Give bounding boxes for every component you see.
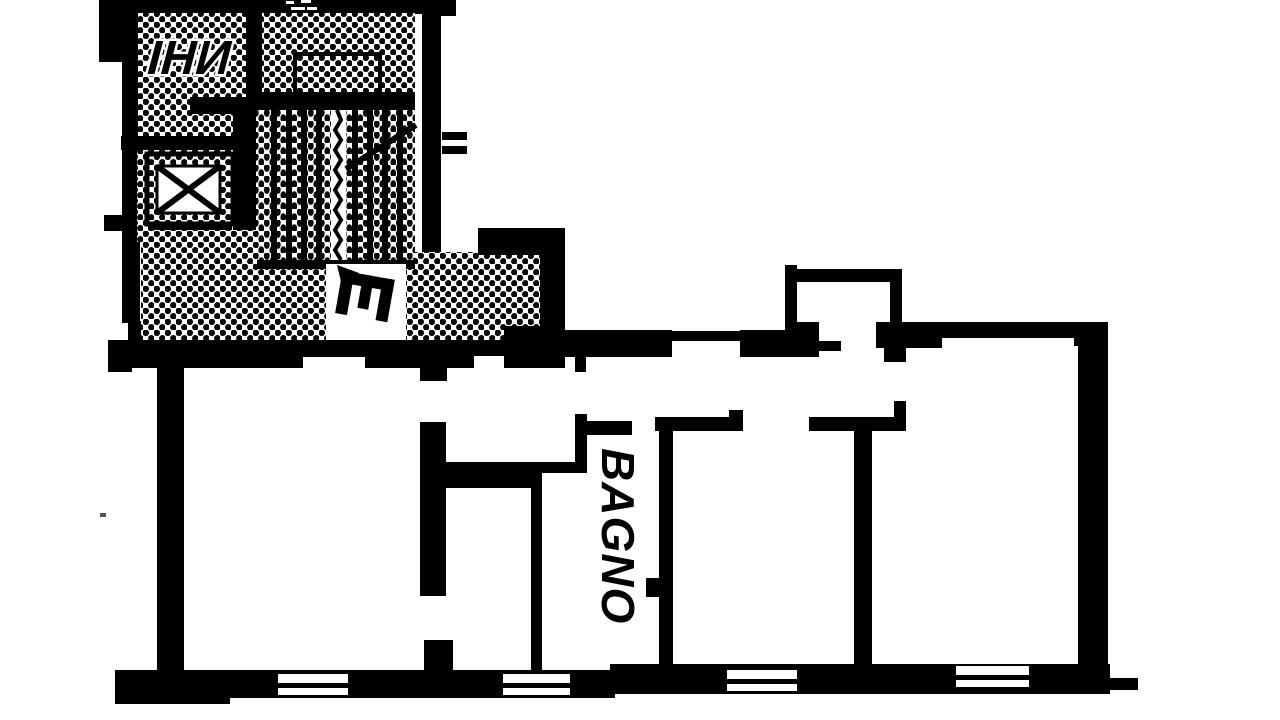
svg-text:BAGNO: BAGNO <box>592 448 644 624</box>
svg-text:IHИ: IHИ <box>146 32 234 85</box>
